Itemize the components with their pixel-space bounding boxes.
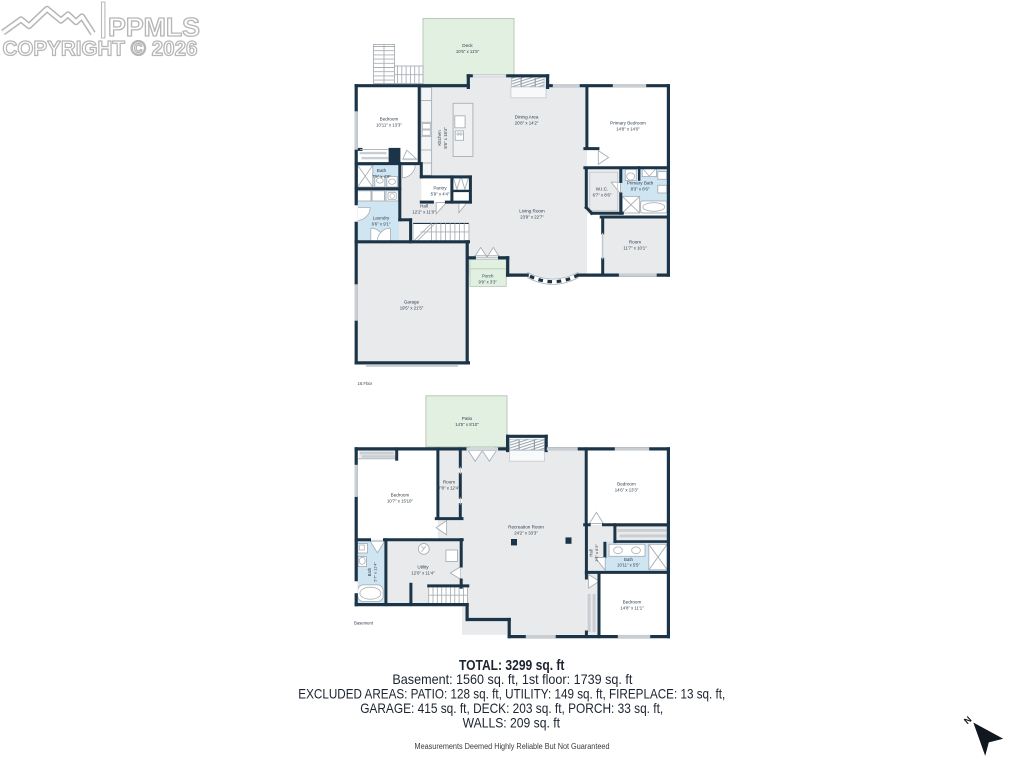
- svg-text:5'9" x 4'4": 5'9" x 4'4": [431, 191, 450, 196]
- svg-text:Primary Bath: Primary Bath: [627, 180, 654, 185]
- svg-text:9'9" x 3'3": 9'9" x 3'3": [479, 279, 498, 284]
- svg-text:Bedroom: Bedroom: [623, 599, 642, 604]
- svg-text:Bath: Bath: [624, 557, 634, 562]
- svg-text:COPYRIGHT © 2026: COPYRIGHT © 2026: [3, 37, 198, 61]
- svg-text:Laundry: Laundry: [373, 215, 390, 220]
- svg-text:WALLS: 209 sq. ft: WALLS: 209 sq. ft: [463, 715, 561, 730]
- svg-text:Room: Room: [629, 239, 641, 244]
- svg-text:Bath: Bath: [377, 168, 387, 173]
- svg-text:6'7" x 8'6": 6'7" x 8'6": [593, 193, 612, 198]
- svg-text:GARAGE: 415 sq. ft, DECK: 203: GARAGE: 415 sq. ft, DECK: 203 sq. ft, PO…: [360, 701, 663, 716]
- svg-text:11'7" x 10'1": 11'7" x 10'1": [623, 245, 647, 250]
- svg-text:Bedroom: Bedroom: [391, 492, 410, 497]
- svg-text:12'2" x 11'0": 12'2" x 11'0": [412, 209, 436, 214]
- svg-text:Porch: Porch: [482, 274, 494, 279]
- svg-text:6'6" x 9'1": 6'6" x 9'1": [372, 221, 391, 226]
- svg-text:8'3" x 8'6": 8'3" x 8'6": [631, 186, 650, 191]
- svg-text:19'5" x 21'5": 19'5" x 21'5": [400, 305, 424, 310]
- svg-text:Basement: Basement: [354, 621, 374, 627]
- svg-text:20'8" x 14'2": 20'8" x 14'2": [515, 120, 539, 125]
- svg-text:Living Room: Living Room: [519, 208, 545, 213]
- svg-text:Hall: Hall: [420, 203, 428, 208]
- svg-text:12'0" x 11'4": 12'0" x 11'4": [411, 570, 435, 575]
- svg-text:Pantry: Pantry: [433, 185, 447, 190]
- svg-text:8'6" x 18'4": 8'6" x 18'4": [443, 127, 448, 149]
- svg-text:14'6" x 13'3": 14'6" x 13'3": [615, 487, 639, 492]
- svg-text:Deck: Deck: [462, 43, 473, 48]
- svg-text:7'5" x 4'9": 7'5" x 4'9": [372, 174, 391, 179]
- svg-text:Basement: 1560 sq. ft, 1st flo: Basement: 1560 sq. ft, 1st floor: 1739 s…: [392, 672, 632, 687]
- svg-text:14'5" x 8'10": 14'5" x 8'10": [455, 422, 479, 427]
- svg-text:14'8" x 14'0": 14'8" x 14'0": [616, 126, 640, 131]
- svg-text:Kitchen: Kitchen: [437, 130, 442, 146]
- svg-text:Bedroom: Bedroom: [380, 116, 399, 121]
- svg-text:10'11" x 5'5": 10'11" x 5'5": [617, 563, 640, 568]
- svg-text:W.I.C.: W.I.C.: [596, 187, 609, 192]
- svg-text:10'11" x 13'3": 10'11" x 13'3": [376, 122, 402, 127]
- svg-text:Primary Bedroom: Primary Bedroom: [610, 120, 646, 125]
- svg-text:Recreation Room: Recreation Room: [508, 524, 544, 529]
- svg-text:10'6" x 11'5": 10'6" x 11'5": [456, 49, 480, 54]
- svg-text:3'5" x 8'3": 3'5" x 8'3": [594, 544, 599, 562]
- svg-text:1st Floor: 1st Floor: [358, 381, 373, 387]
- svg-text:Room: Room: [443, 479, 455, 484]
- svg-text:Bedroom: Bedroom: [617, 481, 636, 486]
- svg-text:Measurements Deemed Highly Rel: Measurements Deemed Highly Reliable But …: [415, 742, 610, 751]
- svg-text:24'2" x 33'3": 24'2" x 33'3": [514, 530, 538, 535]
- svg-text:14'8" x 11'1": 14'8" x 11'1": [620, 605, 644, 610]
- svg-text:7'8" x 12'4": 7'8" x 12'4": [438, 485, 460, 490]
- svg-text:Utility: Utility: [417, 564, 429, 569]
- svg-text:Dining Area: Dining Area: [515, 114, 539, 119]
- svg-text:23'9" x 22'7": 23'9" x 22'7": [520, 214, 544, 219]
- svg-text:Patio: Patio: [462, 416, 473, 421]
- svg-text:Bath: Bath: [367, 567, 372, 576]
- svg-text:Garage: Garage: [404, 299, 420, 304]
- svg-text:10'7" x 15'10": 10'7" x 15'10": [387, 498, 413, 503]
- svg-text:Hall: Hall: [589, 549, 594, 556]
- svg-text:EXCLUDED AREAS: PATIO: 128 sq.: EXCLUDED AREAS: PATIO: 128 sq. ft, UTILI…: [298, 687, 725, 702]
- svg-text:5'7" x 11'4": 5'7" x 11'4": [373, 562, 378, 582]
